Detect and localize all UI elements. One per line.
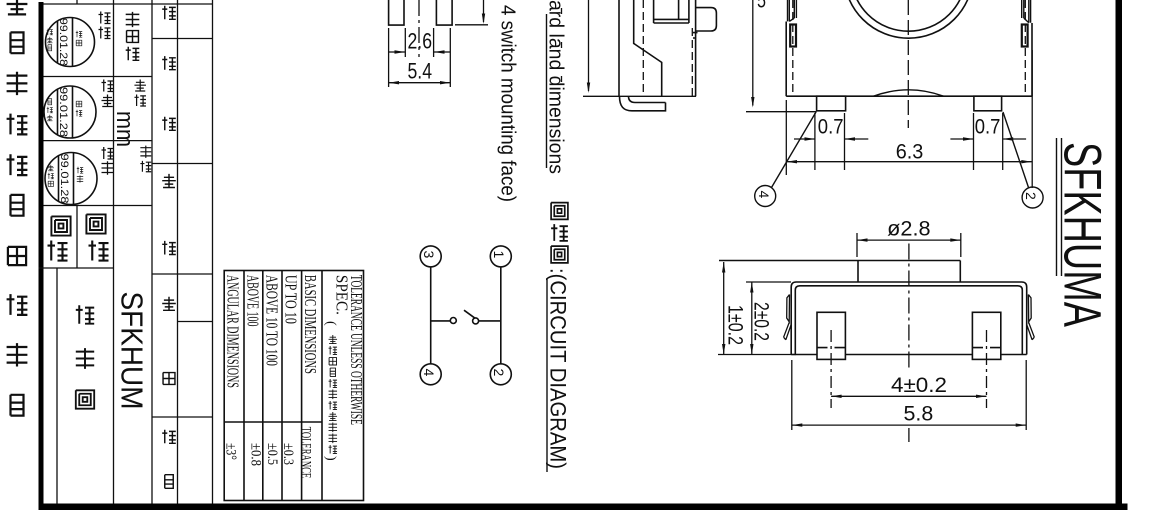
svg-text:3: 3 [421, 251, 437, 259]
svg-text:ø2.8: ø2.8 [887, 217, 930, 240]
svg-text:BASIC DIMENSIONS: BASIC DIMENSIONS [301, 275, 320, 374]
svg-text:SFKHUM: SFKHUM [115, 292, 150, 410]
svg-text:0.7: 0.7 [818, 116, 844, 139]
svg-text:1±0.2: 1±0.2 [724, 305, 747, 345]
svg-text:(: ( [323, 321, 338, 326]
svg-text:mm: mm [111, 111, 138, 147]
svg-text:4: 4 [421, 369, 437, 377]
svg-text:2.6: 2.6 [408, 29, 433, 54]
svg-text:UP TO 10: UP TO 10 [281, 275, 300, 324]
svg-text:2: 2 [491, 369, 507, 377]
svg-text::(CIRCUIT DIAGRAM): :(CIRCUIT DIAGRAM) [546, 268, 571, 469]
svg-text:5.4: 5.4 [408, 59, 433, 84]
svg-text:±0.3: ±0.3 [280, 443, 296, 465]
svg-text:99.01.28: 99.01.28 [57, 18, 69, 66]
svg-text:2±0.2: 2±0.2 [750, 302, 773, 341]
svg-text:4±0.2: 4±0.2 [891, 374, 947, 397]
svg-text:6.3: 6.3 [896, 141, 924, 164]
svg-text:SPEC.: SPEC. [333, 275, 352, 315]
svg-text:TOLERANCE: TOLERANCE [297, 427, 313, 479]
svg-text:4: 4 [756, 191, 772, 199]
svg-text:5.8: 5.8 [904, 402, 934, 425]
svg-text:±0.5: ±0.5 [264, 443, 280, 465]
svg-text:0.7: 0.7 [975, 116, 1001, 139]
svg-text:4 switch mounting face): 4 switch mounting face) [497, 5, 519, 202]
svg-text:ABOVE 10 TO 100: ABOVE 10 TO 100 [262, 275, 281, 366]
svg-text:99.01.28: 99.01.28 [57, 87, 69, 137]
svg-text:1: 1 [491, 251, 507, 259]
svg-text:ABOVE 100: ABOVE 100 [243, 275, 262, 327]
svg-text:): ) [323, 456, 338, 461]
svg-text:ANGULAR DIMENSIONS: ANGULAR DIMENSIONS [224, 275, 243, 388]
svg-text:±0.8: ±0.8 [247, 443, 263, 466]
svg-text:99.01.28: 99.01.28 [58, 154, 70, 204]
svg-text:2: 2 [1023, 192, 1039, 200]
svg-text:5: 5 [757, 0, 766, 13]
svg-text:ard land dimensions: ard land dimensions [545, 0, 567, 174]
svg-text:±3°: ±3° [223, 443, 239, 460]
